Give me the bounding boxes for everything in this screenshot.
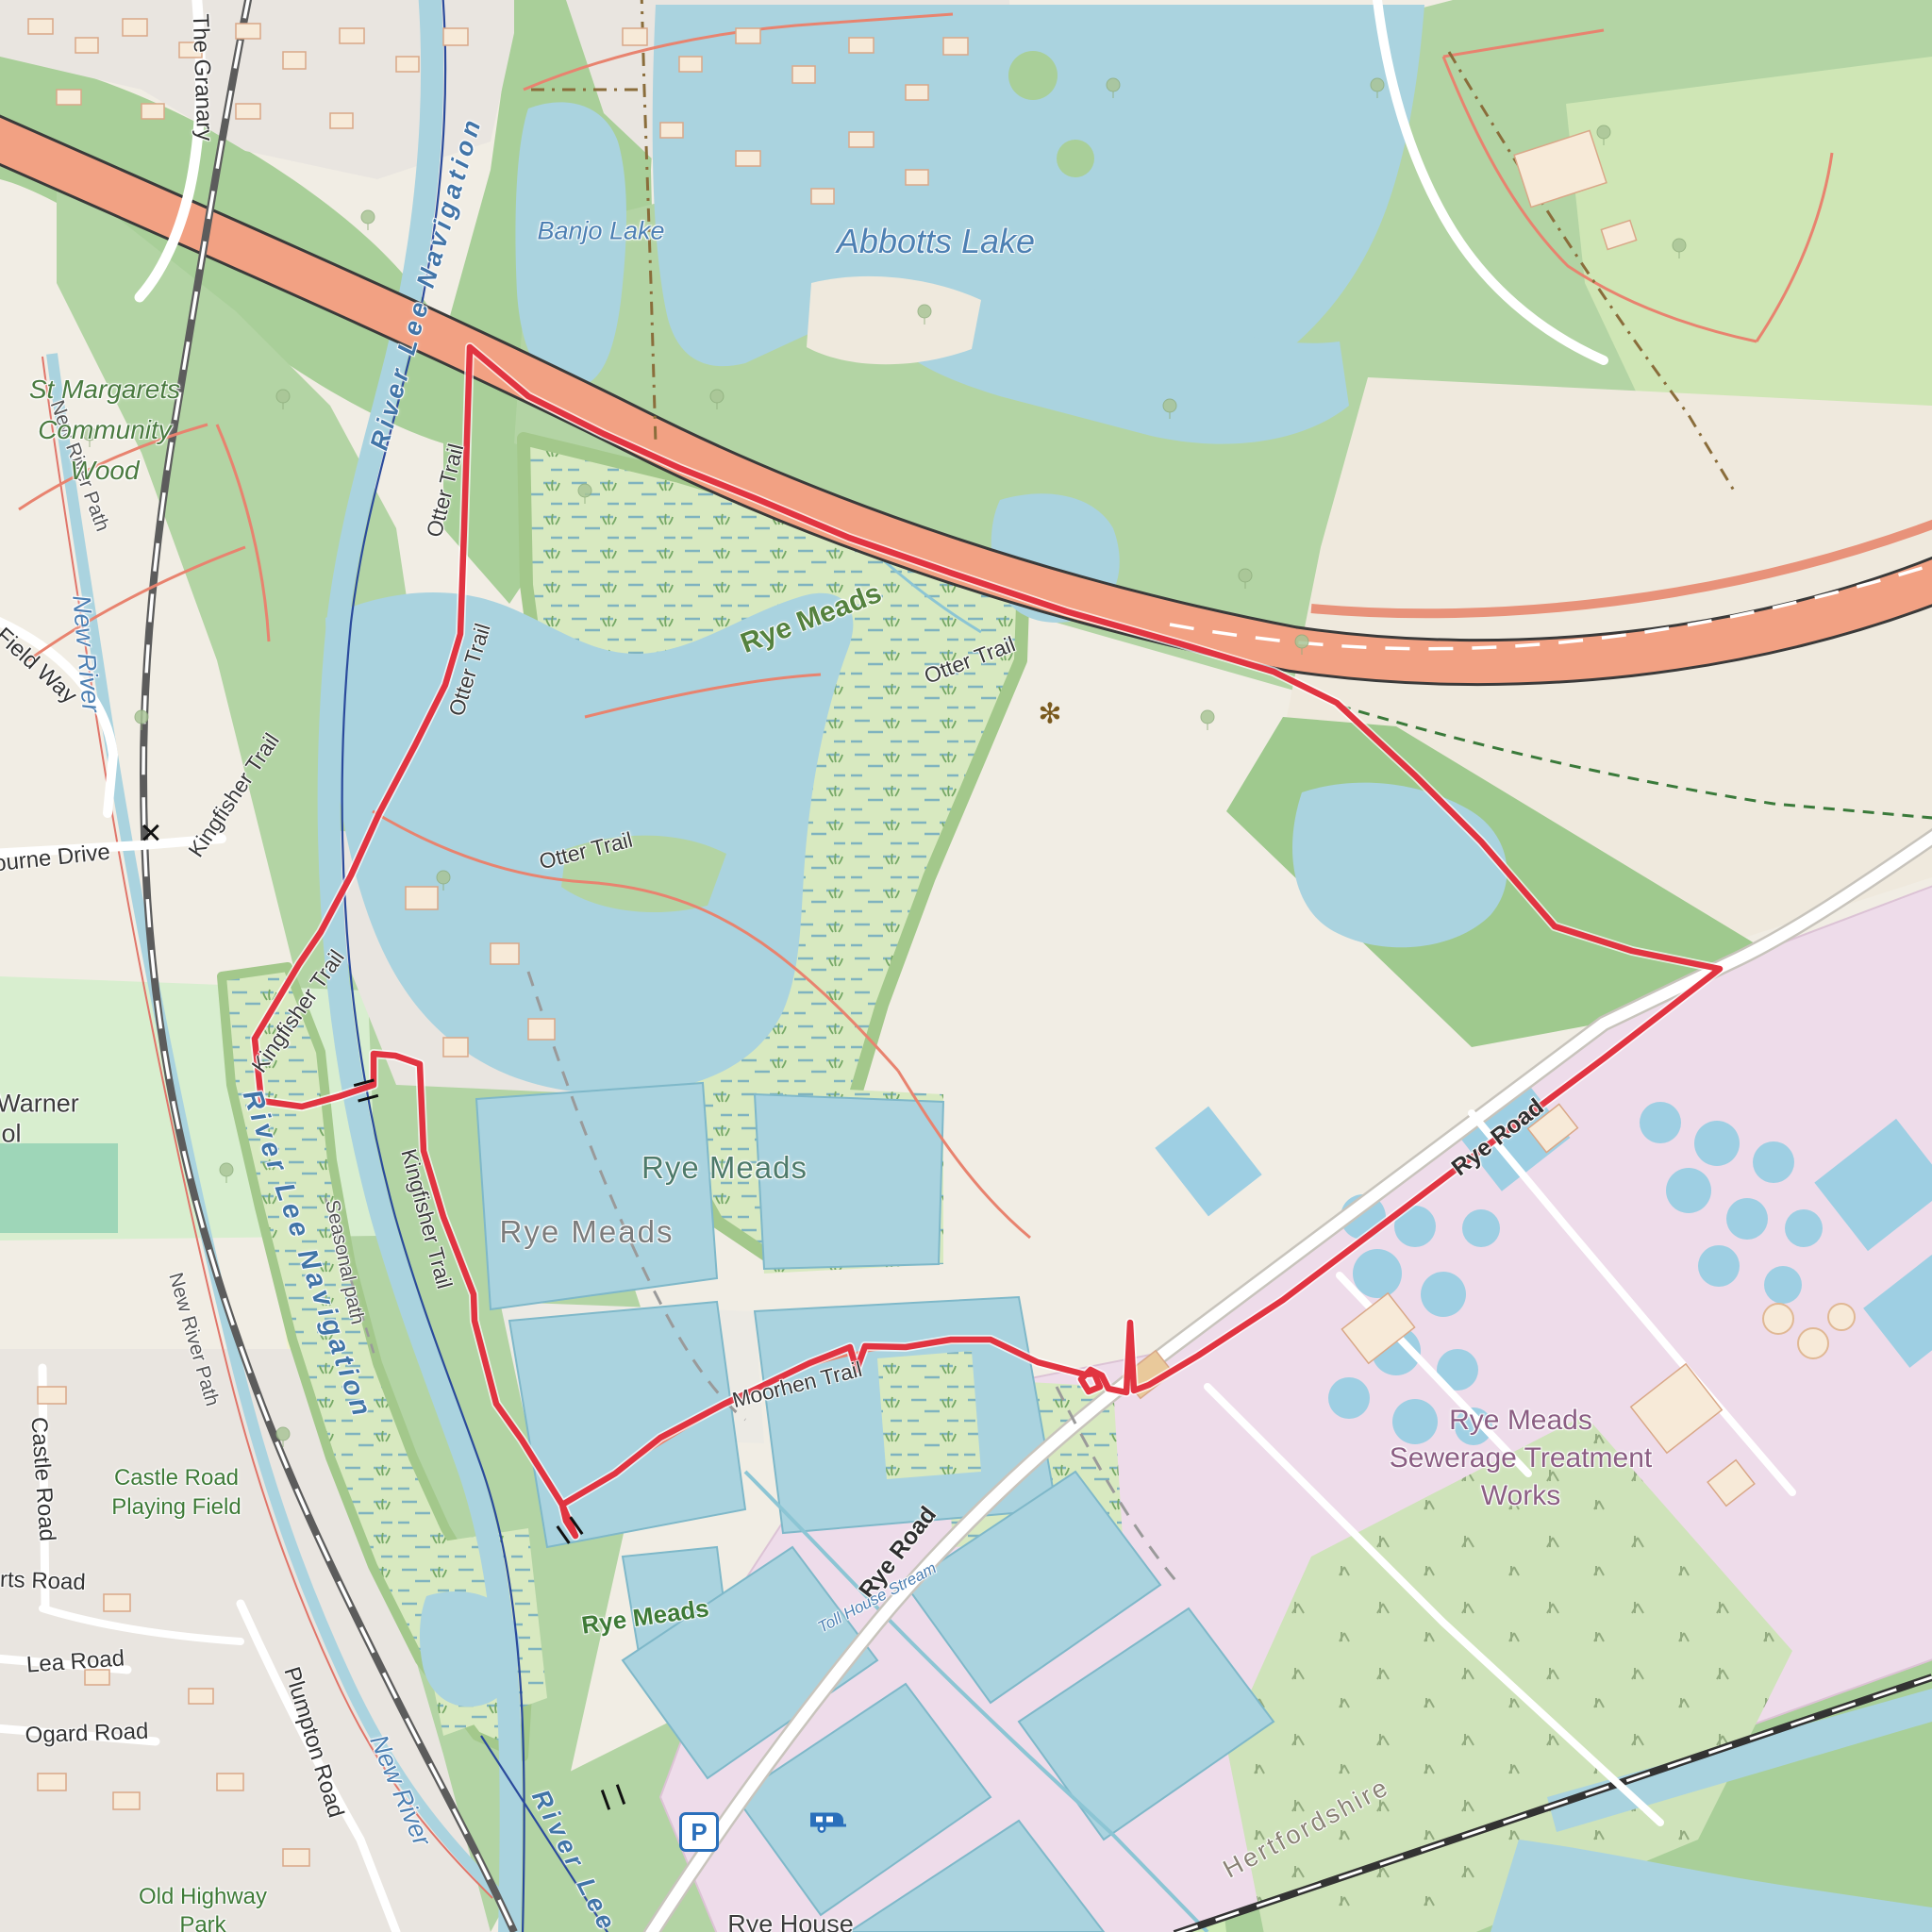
basemap-svg <box>0 0 1932 1932</box>
map-canvas[interactable]: Abbotts LakeBanjo LakeRiver Lee Navigati… <box>0 0 1932 1932</box>
